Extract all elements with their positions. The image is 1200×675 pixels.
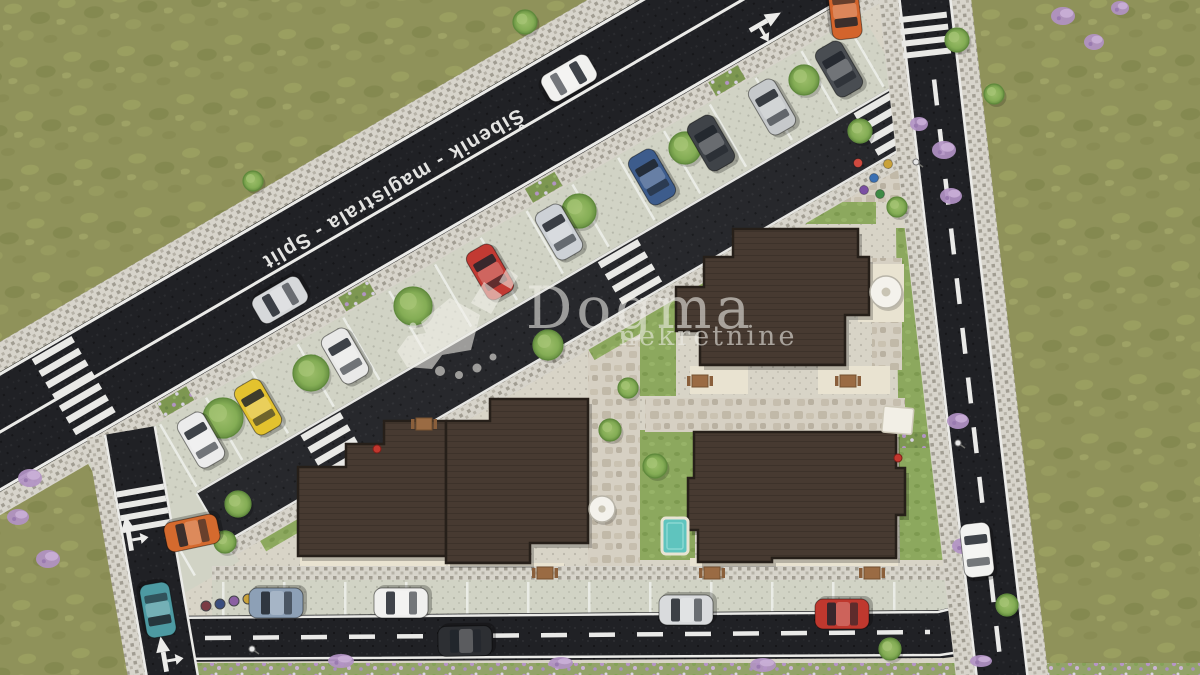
flower-bush: [328, 654, 354, 668]
flower-bush: [36, 550, 60, 568]
flower-pot: [215, 599, 225, 609]
parking-bay-line: [649, 582, 652, 616]
car: [249, 585, 307, 618]
shade-tarp: [882, 406, 914, 435]
playground-equipment: [854, 159, 863, 168]
flower-bush: [932, 141, 956, 159]
parking-bay-line: [527, 582, 530, 616]
playground-equipment: [884, 160, 893, 169]
flower-pot: [201, 601, 211, 611]
red-post: [373, 445, 381, 453]
playground-equipment: [870, 174, 879, 183]
car: [438, 622, 497, 656]
cross-walkway: [645, 398, 905, 432]
red-post: [894, 454, 902, 462]
flower-bush: [947, 413, 969, 429]
flower-pot: [229, 596, 239, 606]
car: [374, 585, 432, 618]
flower-bush: [970, 655, 992, 667]
car: [959, 521, 998, 582]
parking-bay-line: [771, 582, 774, 616]
playground-equipment: [876, 190, 885, 199]
flower-bush: [549, 657, 573, 669]
parking-bay-line: [222, 582, 225, 616]
playground-equipment: [860, 186, 869, 195]
car: [659, 592, 717, 625]
bottom-sidewalk: [212, 566, 952, 580]
flower-bush: [7, 509, 29, 525]
car: [815, 596, 873, 629]
flower-bush: [940, 188, 962, 204]
parking-bay-line: [466, 582, 469, 616]
parking-bay-line: [344, 582, 347, 616]
building-4-roof: [688, 432, 905, 562]
flower-bush: [750, 658, 776, 672]
watermark-brand-suffix: nekretnine: [619, 321, 798, 352]
site-plan-rendering: Šibenik - magistrala - Split: [0, 0, 1200, 675]
flower-bush: [910, 117, 928, 131]
flower-bush: [1084, 34, 1104, 50]
flower-bush: [18, 469, 42, 487]
building-3-roof: [446, 399, 588, 563]
parking-bay-line: [588, 582, 591, 616]
flower-bush: [1051, 7, 1075, 25]
flower-bush: [1111, 1, 1129, 15]
